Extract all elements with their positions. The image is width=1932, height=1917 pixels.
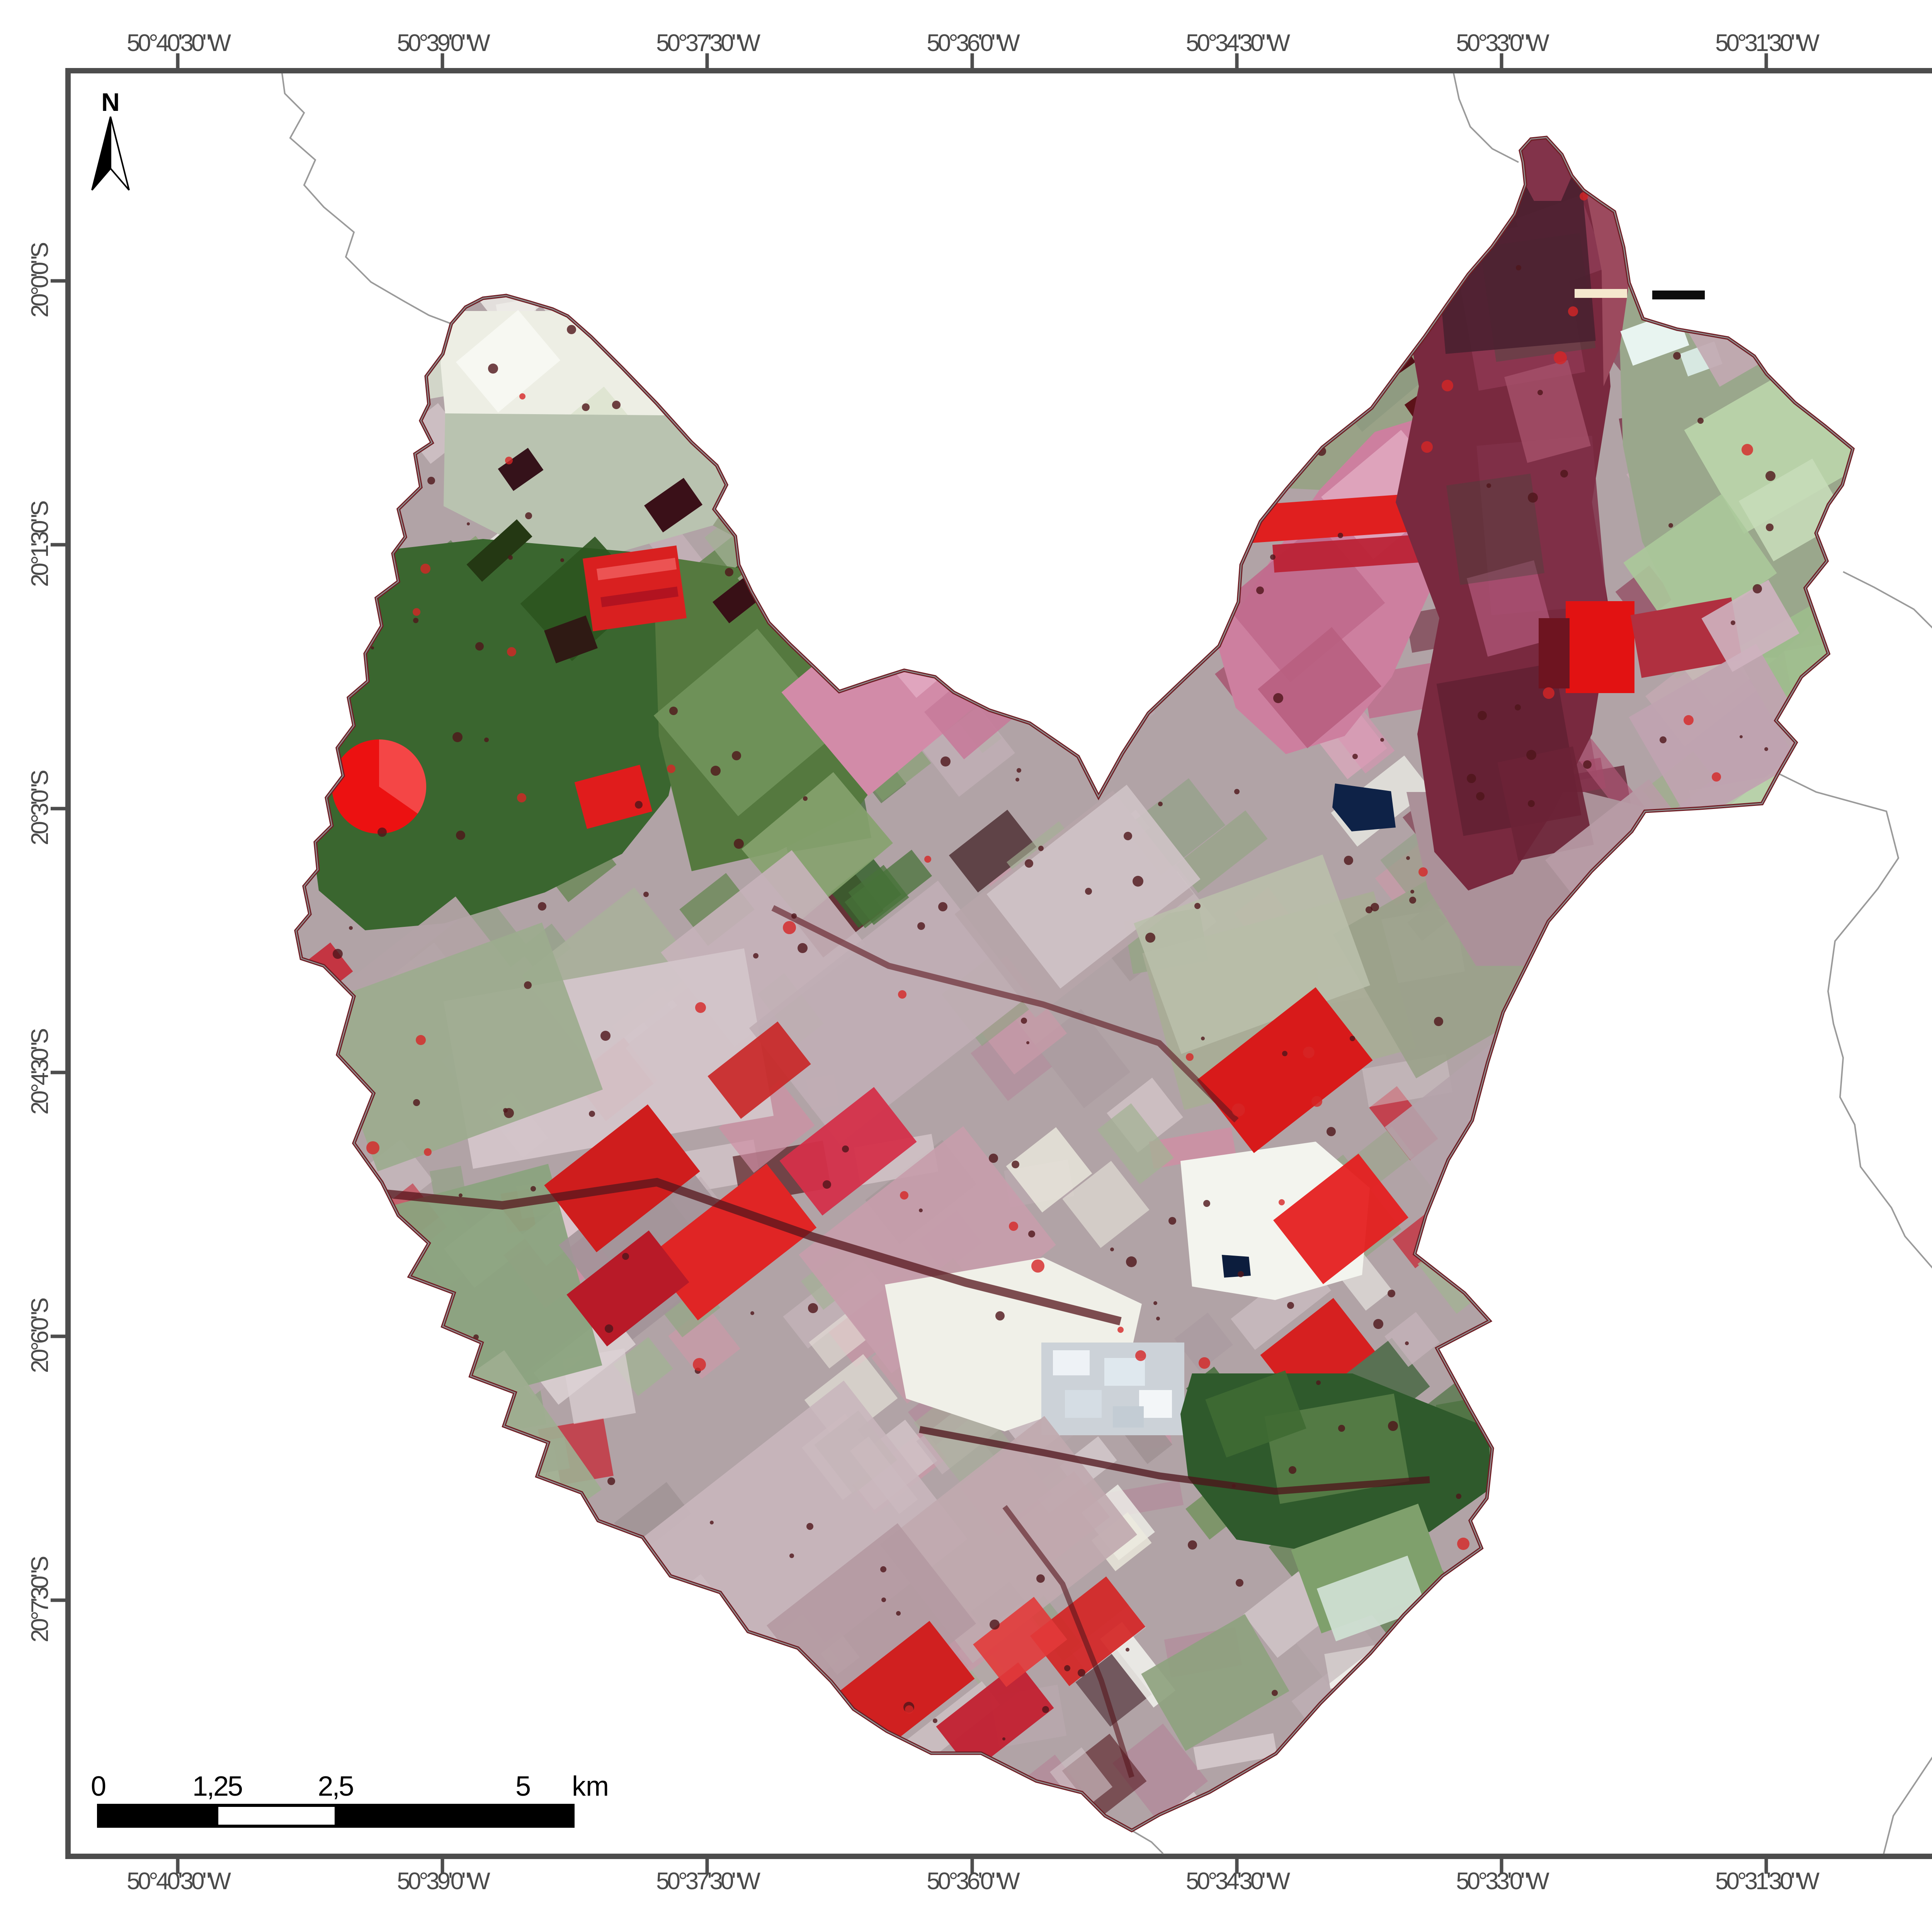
svg-text:50°34'30"W: 50°34'30"W [1186, 1868, 1291, 1895]
svg-text:N: N [101, 88, 120, 116]
svg-text:50°36'0"W: 50°36'0"W [927, 1868, 1020, 1895]
svg-text:50°39'0"W: 50°39'0"W [397, 30, 490, 56]
svg-text:50°31'30"W: 50°31'30"W [1715, 30, 1820, 56]
svg-text:50°31'30"W: 50°31'30"W [1715, 1868, 1820, 1895]
svg-text:km: km [572, 1771, 609, 1802]
svg-text:50°40'30"W: 50°40'30"W [127, 1868, 231, 1895]
svg-text:20°4'30"S: 20°4'30"S [27, 1029, 53, 1115]
svg-text:20°6'0"S: 20°6'0"S [27, 1298, 53, 1373]
svg-text:1,25: 1,25 [192, 1771, 242, 1802]
svg-text:20°1'30"S: 20°1'30"S [27, 501, 53, 587]
svg-text:50°34'30"W: 50°34'30"W [1186, 30, 1291, 56]
svg-text:50°40'30"W: 50°40'30"W [127, 30, 231, 56]
svg-text:0: 0 [91, 1771, 106, 1802]
svg-text:2,5: 2,5 [318, 1771, 353, 1802]
svg-text:50°36'0"W: 50°36'0"W [927, 30, 1020, 56]
svg-text:50°33'0"W: 50°33'0"W [1456, 30, 1549, 56]
svg-text:50°33'0"W: 50°33'0"W [1456, 1868, 1549, 1895]
svg-text:50°37'30"W: 50°37'30"W [656, 30, 761, 56]
svg-text:5: 5 [515, 1771, 531, 1802]
svg-text:50°39'0"W: 50°39'0"W [397, 1868, 490, 1895]
svg-text:20°3'0"S: 20°3'0"S [27, 770, 53, 845]
svg-text:20°7'30"S: 20°7'30"S [27, 1557, 53, 1642]
svg-text:50°37'30"W: 50°37'30"W [656, 1868, 761, 1895]
svg-text:20°0'0"S: 20°0'0"S [27, 243, 53, 318]
